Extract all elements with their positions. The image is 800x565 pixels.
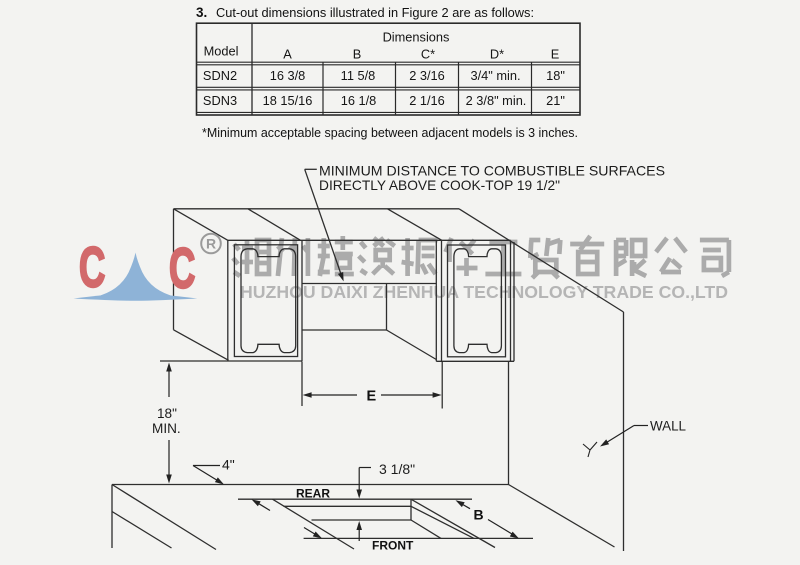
svg-text:A: A	[283, 47, 292, 62]
svg-text:HUZHOU DAIXI ZHENHUA TECHNOLOG: HUZHOU DAIXI ZHENHUA TECHNOLOGY TRADE CO…	[240, 282, 728, 302]
svg-text:SDN3: SDN3	[203, 93, 237, 108]
svg-text:C: C	[169, 237, 195, 300]
svg-text:MINIMUM DISTANCE TO COMBUSTIBL: MINIMUM DISTANCE TO COMBUSTIBLE SURFACES	[319, 164, 665, 179]
svg-text:*Minimum acceptable spacing be: *Minimum acceptable spacing between adja…	[202, 126, 578, 140]
svg-text:2 3/16: 2 3/16	[409, 68, 445, 83]
svg-text:E: E	[551, 47, 560, 62]
svg-text:B: B	[353, 47, 362, 62]
svg-text:SDN2: SDN2	[203, 68, 237, 83]
svg-text:18": 18"	[157, 406, 177, 421]
svg-text:R: R	[206, 236, 216, 252]
svg-text:4": 4"	[222, 457, 235, 473]
svg-text:B: B	[474, 507, 484, 523]
svg-text:16 3/8: 16 3/8	[270, 68, 306, 83]
svg-text:Dimensions: Dimensions	[383, 30, 450, 45]
svg-text:16 1/8: 16 1/8	[341, 93, 377, 108]
svg-text:D*: D*	[490, 47, 504, 62]
svg-text:3 1/8": 3 1/8"	[379, 461, 415, 477]
svg-text:Model: Model	[204, 44, 239, 59]
svg-text:Cut-out dimensions illustrated: Cut-out dimensions illustrated in Figure…	[216, 5, 534, 20]
svg-text:C*: C*	[421, 47, 435, 62]
svg-text:WALL: WALL	[650, 419, 686, 434]
svg-text:18": 18"	[546, 68, 565, 83]
svg-text:REAR: REAR	[296, 487, 330, 501]
svg-text:3.: 3.	[196, 5, 207, 20]
svg-text:21": 21"	[546, 93, 565, 108]
svg-text:FRONT: FRONT	[372, 539, 414, 553]
svg-text:2 3/8" min.: 2 3/8" min.	[466, 93, 527, 108]
svg-text:2 1/16: 2 1/16	[409, 93, 445, 108]
svg-text:MIN.: MIN.	[152, 421, 181, 436]
svg-text:3/4" min.: 3/4" min.	[470, 68, 520, 83]
svg-text:11 5/8: 11 5/8	[341, 68, 376, 83]
svg-text:DIRECTLY ABOVE COOK-TOP 19 1/2: DIRECTLY ABOVE COOK-TOP 19 1/2"	[319, 178, 560, 193]
svg-text:18 15/16: 18 15/16	[263, 93, 313, 108]
svg-text:E: E	[367, 388, 377, 404]
svg-text:C: C	[79, 236, 105, 299]
